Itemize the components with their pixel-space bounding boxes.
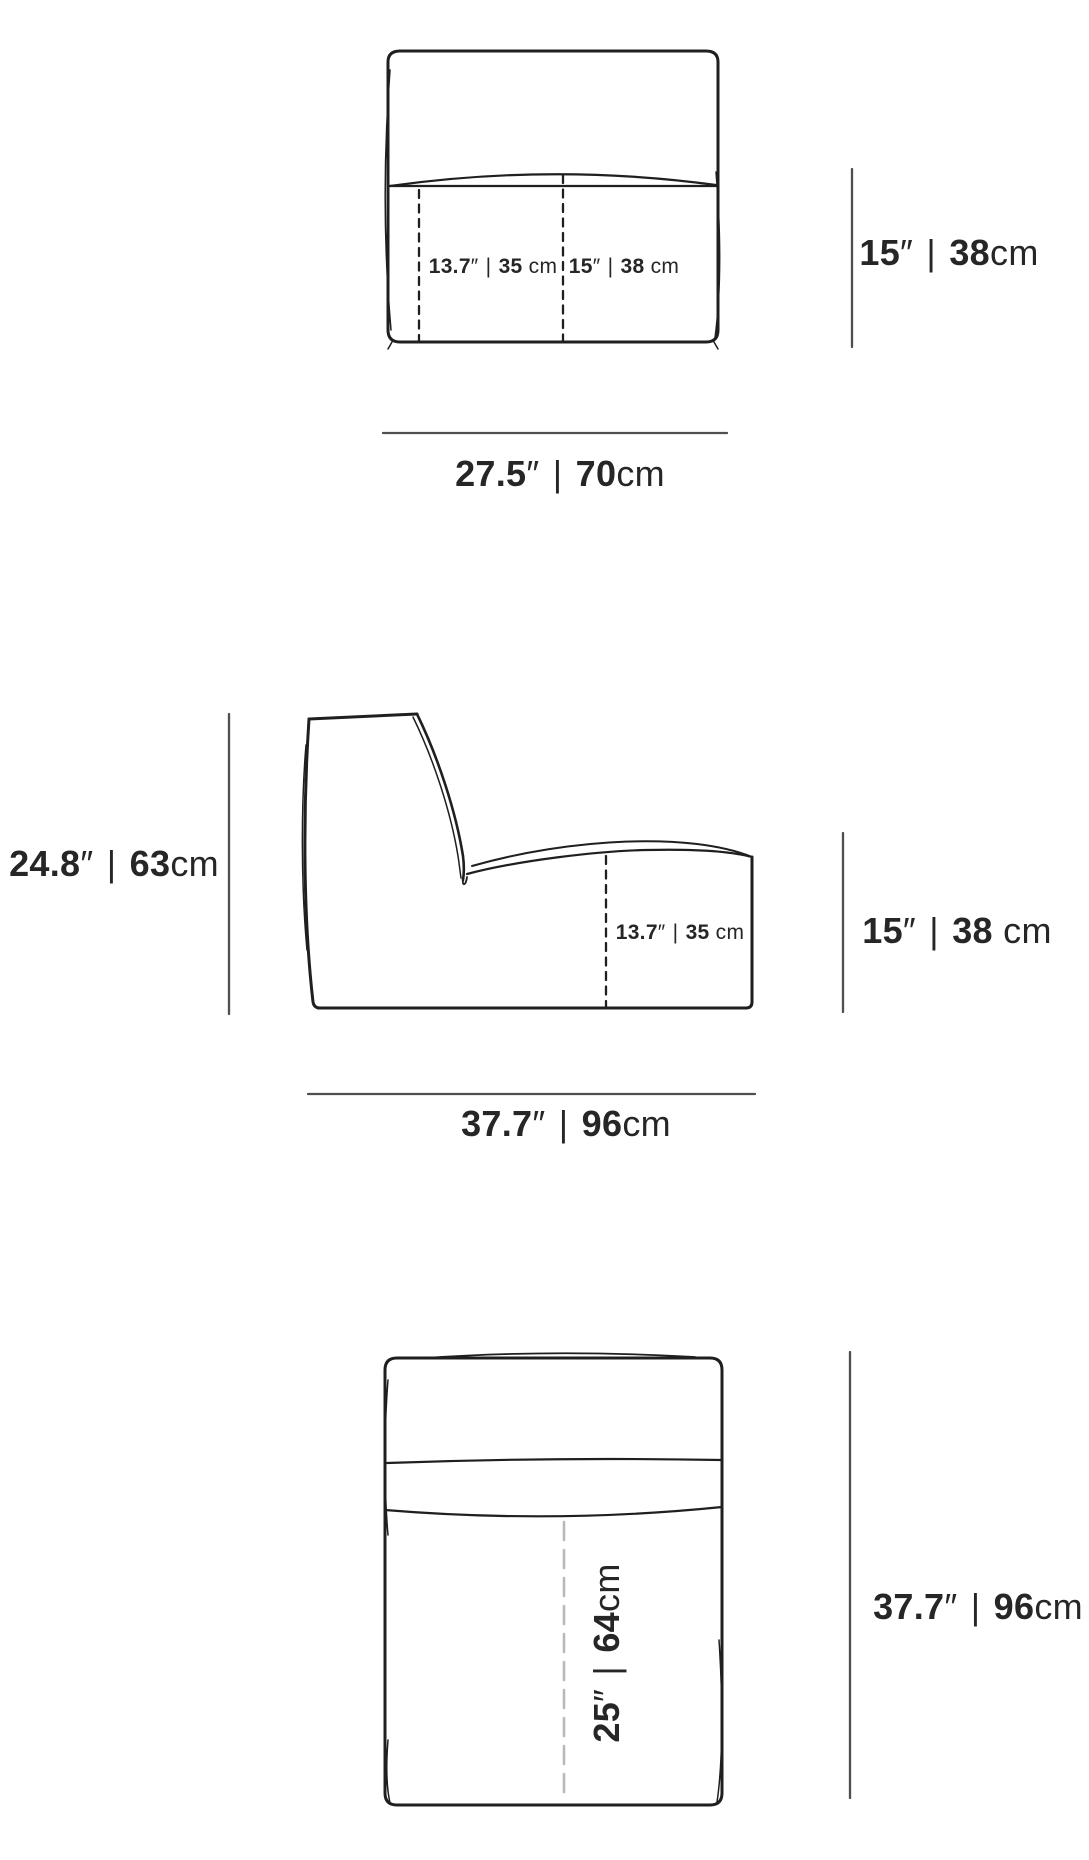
top-seat-width-label: 25″ | 64cm	[586, 1563, 628, 1742]
front-width-label: 27.5″ | 70cm	[455, 453, 665, 495]
front-seat-height-label: 15″ | 38cm	[859, 232, 1038, 274]
side-seat-depth-label: 13.7″ | 35 cm	[616, 921, 745, 945]
side-height-label: 24.8″ | 63cm	[9, 843, 219, 885]
top-depth-label: 37.7″ | 96cm	[873, 1586, 1083, 1628]
side-view-drawing	[229, 714, 843, 1094]
front-view-drawing	[383, 51, 852, 433]
side-depth-label: 37.7″ | 96cm	[461, 1103, 671, 1145]
front-seat-split-left-label: 13.7″ | 35 cm	[429, 255, 558, 279]
side-seat-height-label: 15″ | 38 cm	[862, 910, 1052, 952]
front-seat-split-right-label: 15″ | 38 cm	[569, 255, 679, 279]
seat-dimensions-diagram: 13.7″ | 35 cm 15″ | 38 cm 15″ | 38cm 27.…	[0, 0, 1089, 1860]
